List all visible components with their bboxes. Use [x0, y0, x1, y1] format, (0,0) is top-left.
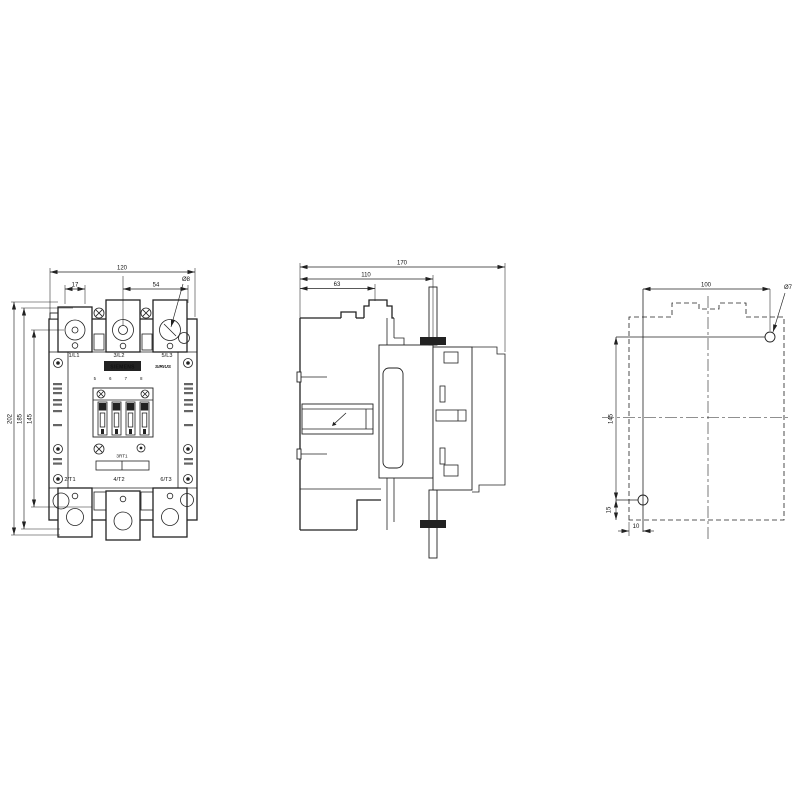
- marking-label-box: [302, 404, 373, 434]
- rear-outline: [602, 289, 790, 542]
- terminal-label-6T3: 6/T3: [160, 477, 171, 483]
- dim-front-overall-width: 120: [117, 266, 128, 272]
- dim-front-offset-left: 17: [72, 283, 79, 289]
- dim-front-overall-height: 202: [8, 413, 14, 424]
- dimensional-drawing: 1/L1 3/L2 5/L3 SIEMENS SIRIUS 5 6 7 8: [0, 0, 800, 800]
- dim-front-height-inner: 185: [18, 413, 24, 424]
- rear-dimensions: 100 Ø7 145 15 10: [607, 283, 793, 537]
- front-connector-block: [93, 388, 153, 437]
- dim-side-depth-front: 63: [334, 282, 341, 288]
- terminal-label-5L3: 5/L3: [162, 353, 173, 359]
- dim-rear-edge-offset-v: 15: [607, 506, 613, 513]
- rear-view: 100 Ø7 145 15 10: [602, 283, 793, 543]
- siemens-logo-text: SIEMENS: [110, 365, 135, 371]
- dim-rear-edge-offset-h: 10: [633, 524, 640, 530]
- dim-rear-mount-spacing-h: 100: [701, 283, 712, 289]
- sirius-label: SIRIUS: [155, 364, 172, 370]
- dim-front-mount-spacing-v: 145: [28, 413, 34, 424]
- pole-numbers: 5 6 7 8: [94, 376, 149, 381]
- dim-side-depth-mid: 110: [361, 273, 371, 279]
- coil-pin-bottom: [420, 490, 446, 558]
- model-label: 3RT1: [116, 454, 128, 459]
- terminal-label-1L1: 1/L1: [69, 353, 80, 359]
- drawing-page: 1/L1 3/L2 5/L3 SIEMENS SIRIUS 5 6 7 8: [0, 0, 800, 800]
- front-view: 1/L1 3/L2 5/L3 SIEMENS SIRIUS 5 6 7 8: [8, 266, 198, 541]
- terminal-label-4T2: 4/T2: [113, 477, 124, 483]
- dim-front-terminal-hole: Ø8: [182, 277, 191, 283]
- rear-mount-hole-top-right: [765, 332, 775, 342]
- side-body: [297, 287, 505, 558]
- dim-side-depth-total: 170: [397, 261, 408, 267]
- front-body: 1/L1 3/L2 5/L3 SIEMENS SIRIUS 5 6 7 8: [49, 300, 197, 540]
- dim-rear-mount-hole: Ø7: [784, 285, 793, 291]
- side-view: 170 110 63: [297, 261, 505, 559]
- terminal-label-3L2: 3/L2: [114, 353, 125, 359]
- dim-front-offset-mid: 54: [153, 283, 160, 289]
- magnet-housing: [433, 347, 505, 492]
- din-claw-bottom: [297, 449, 327, 459]
- rear-hole-leader: [773, 293, 785, 332]
- front-bottom-terminals: [53, 488, 194, 540]
- dim-rear-mount-spacing-v: 145: [609, 413, 615, 424]
- terminal-label-2T1: 2/T1: [64, 477, 75, 483]
- din-claw-top: [297, 372, 327, 382]
